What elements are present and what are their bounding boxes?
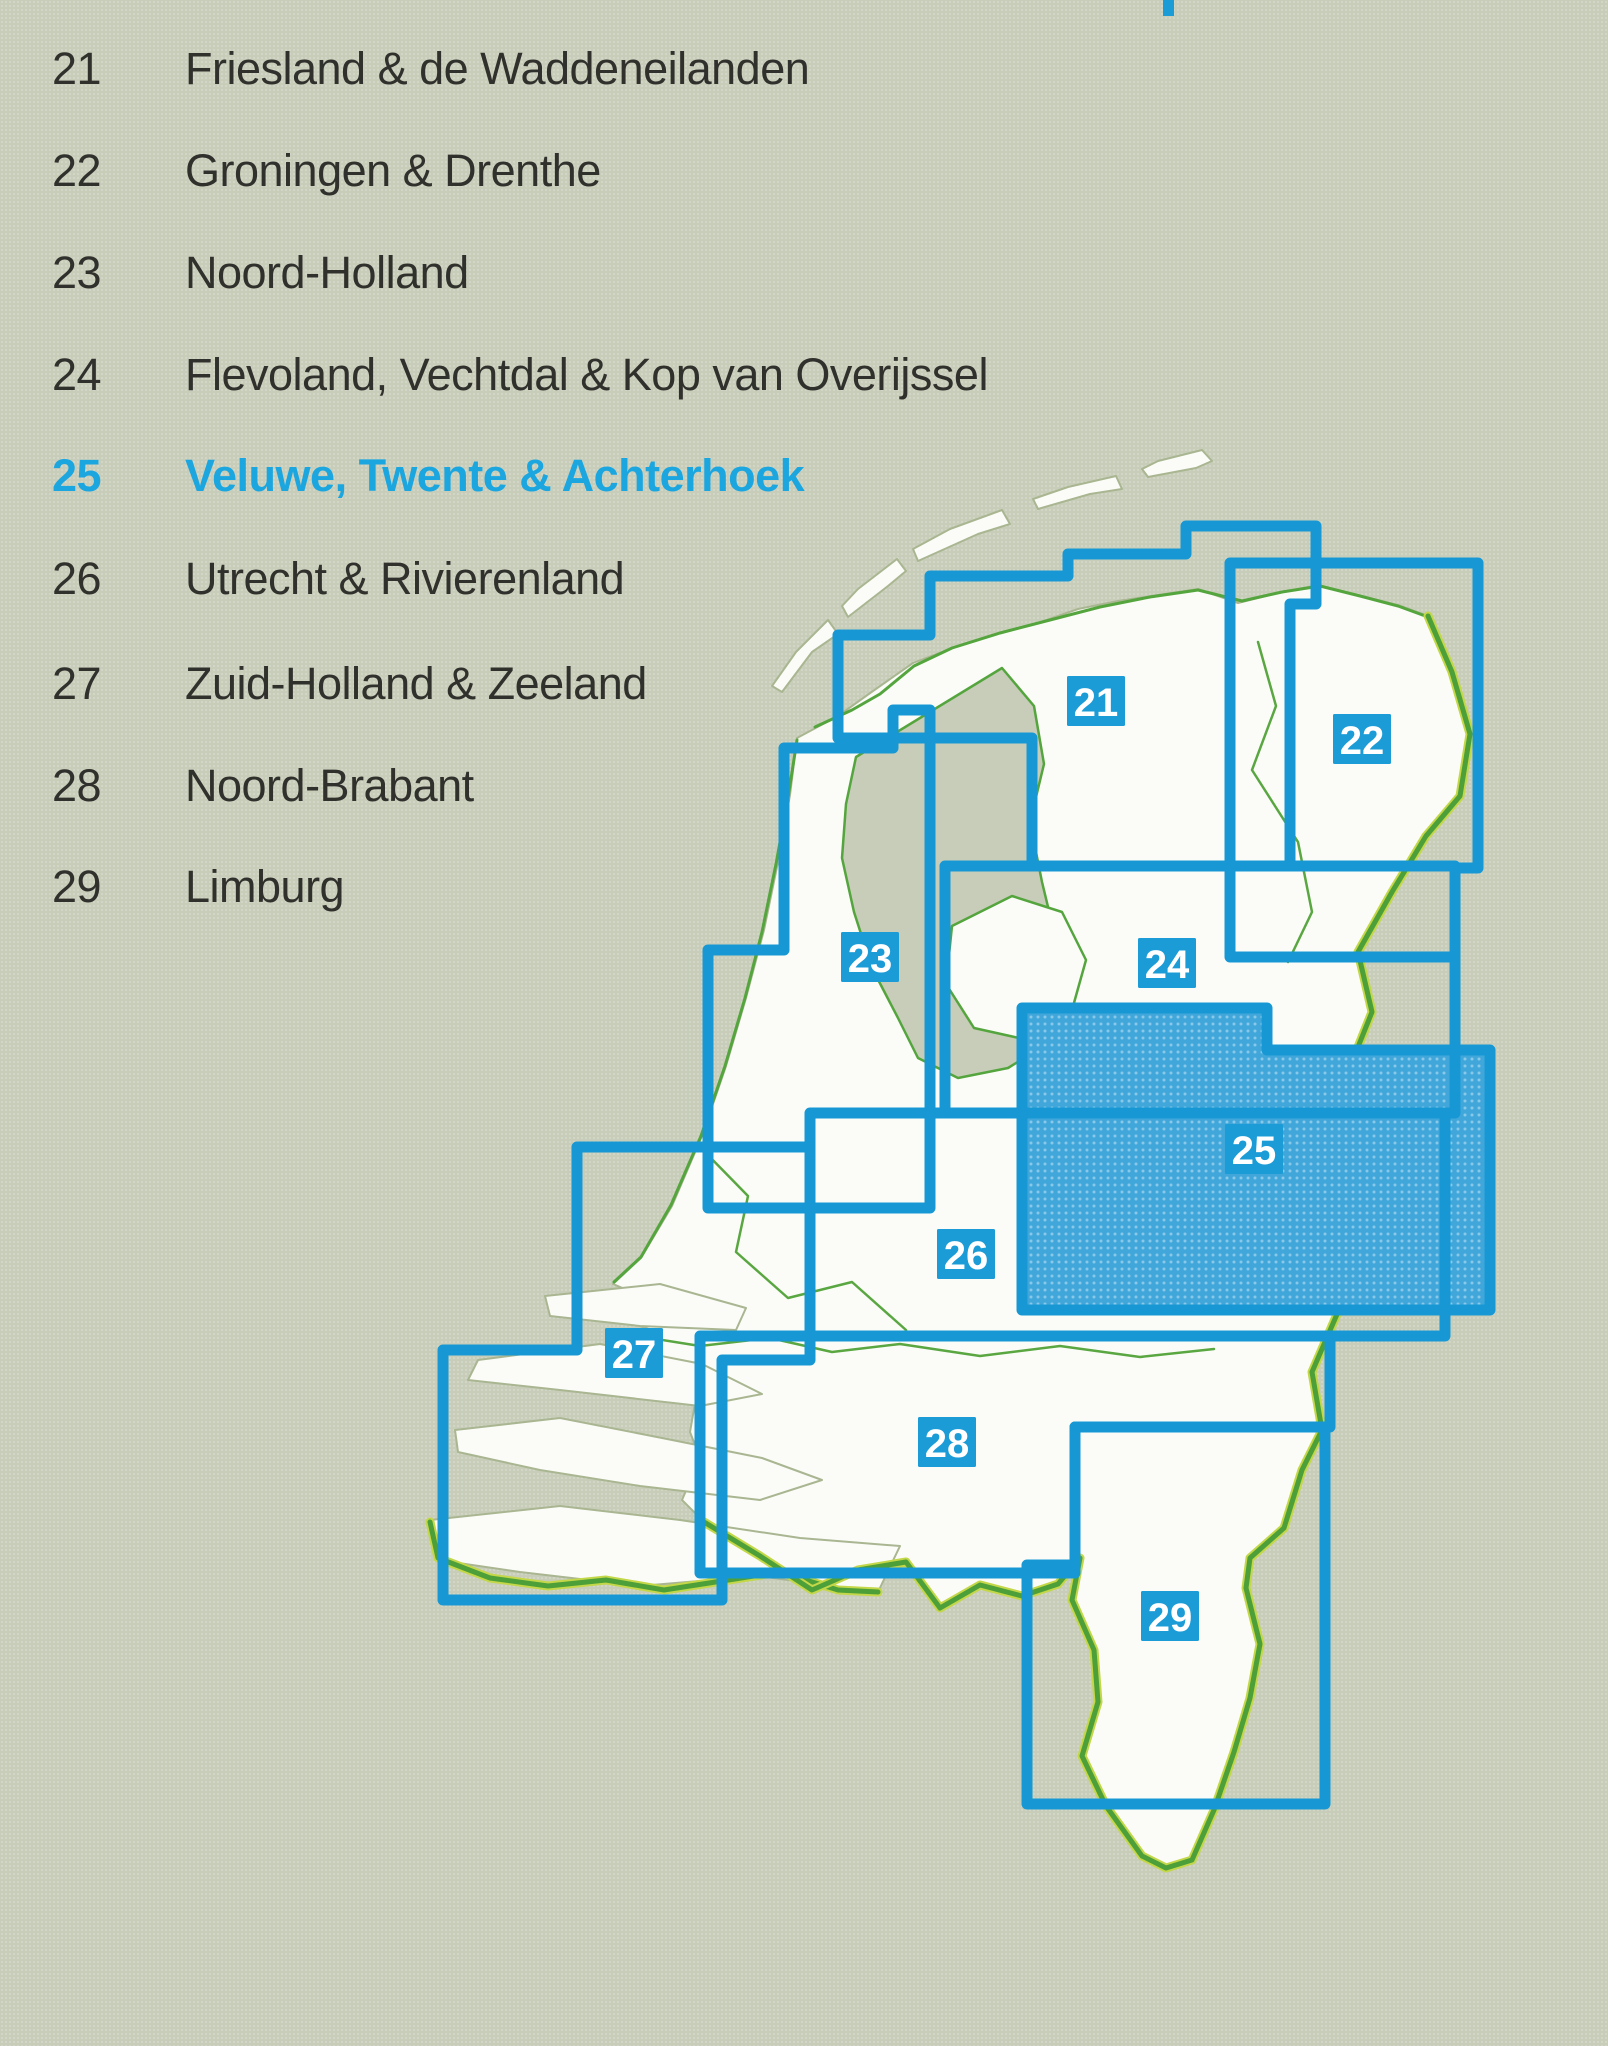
legend-label: Veluwe, Twente & Achterhoek [185, 450, 804, 501]
legend-label: Limburg [185, 861, 344, 912]
badge-number: 27 [612, 1333, 657, 1377]
legend-item-27: 27Zuid-Holland & Zeeland [52, 659, 647, 709]
legend-number: 23 [52, 248, 185, 298]
badge-number: 28 [925, 1422, 970, 1466]
legend-item-26: 26Utrecht & Rivierenland [52, 554, 624, 604]
legend-item-25-highlighted: 25Veluwe, Twente & Achterhoek [52, 451, 804, 501]
sheet-badge-25: 25 [1225, 1124, 1283, 1174]
legend-number: 28 [52, 761, 185, 811]
legend-item-29: 29Limburg [52, 862, 344, 912]
sheet-badge-27: 27 [605, 1328, 663, 1378]
legend-item-28: 28Noord-Brabant [52, 761, 474, 811]
legend-label: Friesland & de Waddeneilanden [185, 43, 809, 94]
sheet-badge-29: 29 [1141, 1591, 1199, 1641]
badge-number: 29 [1148, 1596, 1193, 1640]
badge-number: 25 [1232, 1129, 1277, 1173]
legend-label: Zuid-Holland & Zeeland [185, 658, 647, 709]
print-corner-mark [1163, 0, 1174, 16]
legend-number: 27 [52, 659, 185, 709]
legend-item-23: 23Noord-Holland [52, 248, 469, 298]
legend-label: Noord-Holland [185, 247, 469, 298]
legend-label: Utrecht & Rivierenland [185, 553, 624, 604]
legend-label: Groningen & Drenthe [185, 145, 601, 196]
legend-number: 29 [52, 862, 185, 912]
legend-label: Flevoland, Vechtdal & Kop van Overijssel [185, 349, 988, 400]
legend-number: 21 [52, 44, 185, 94]
legend-item-22: 22Groningen & Drenthe [52, 146, 601, 196]
legend-label: Noord-Brabant [185, 760, 474, 811]
legend-item-24: 24Flevoland, Vechtdal & Kop van Overijss… [52, 350, 988, 400]
badge-number: 26 [944, 1234, 989, 1278]
legend-item-21: 21Friesland & de Waddeneilanden [52, 44, 809, 94]
sheet-legend: 21Friesland & de Waddeneilanden 22Gronin… [0, 0, 1608, 950]
legend-number: 26 [52, 554, 185, 604]
sheet-badge-26: 26 [937, 1229, 995, 1279]
sheet-badge-28: 28 [918, 1417, 976, 1467]
legend-number: 24 [52, 350, 185, 400]
legend-number: 25 [52, 451, 185, 501]
legend-number: 22 [52, 146, 185, 196]
